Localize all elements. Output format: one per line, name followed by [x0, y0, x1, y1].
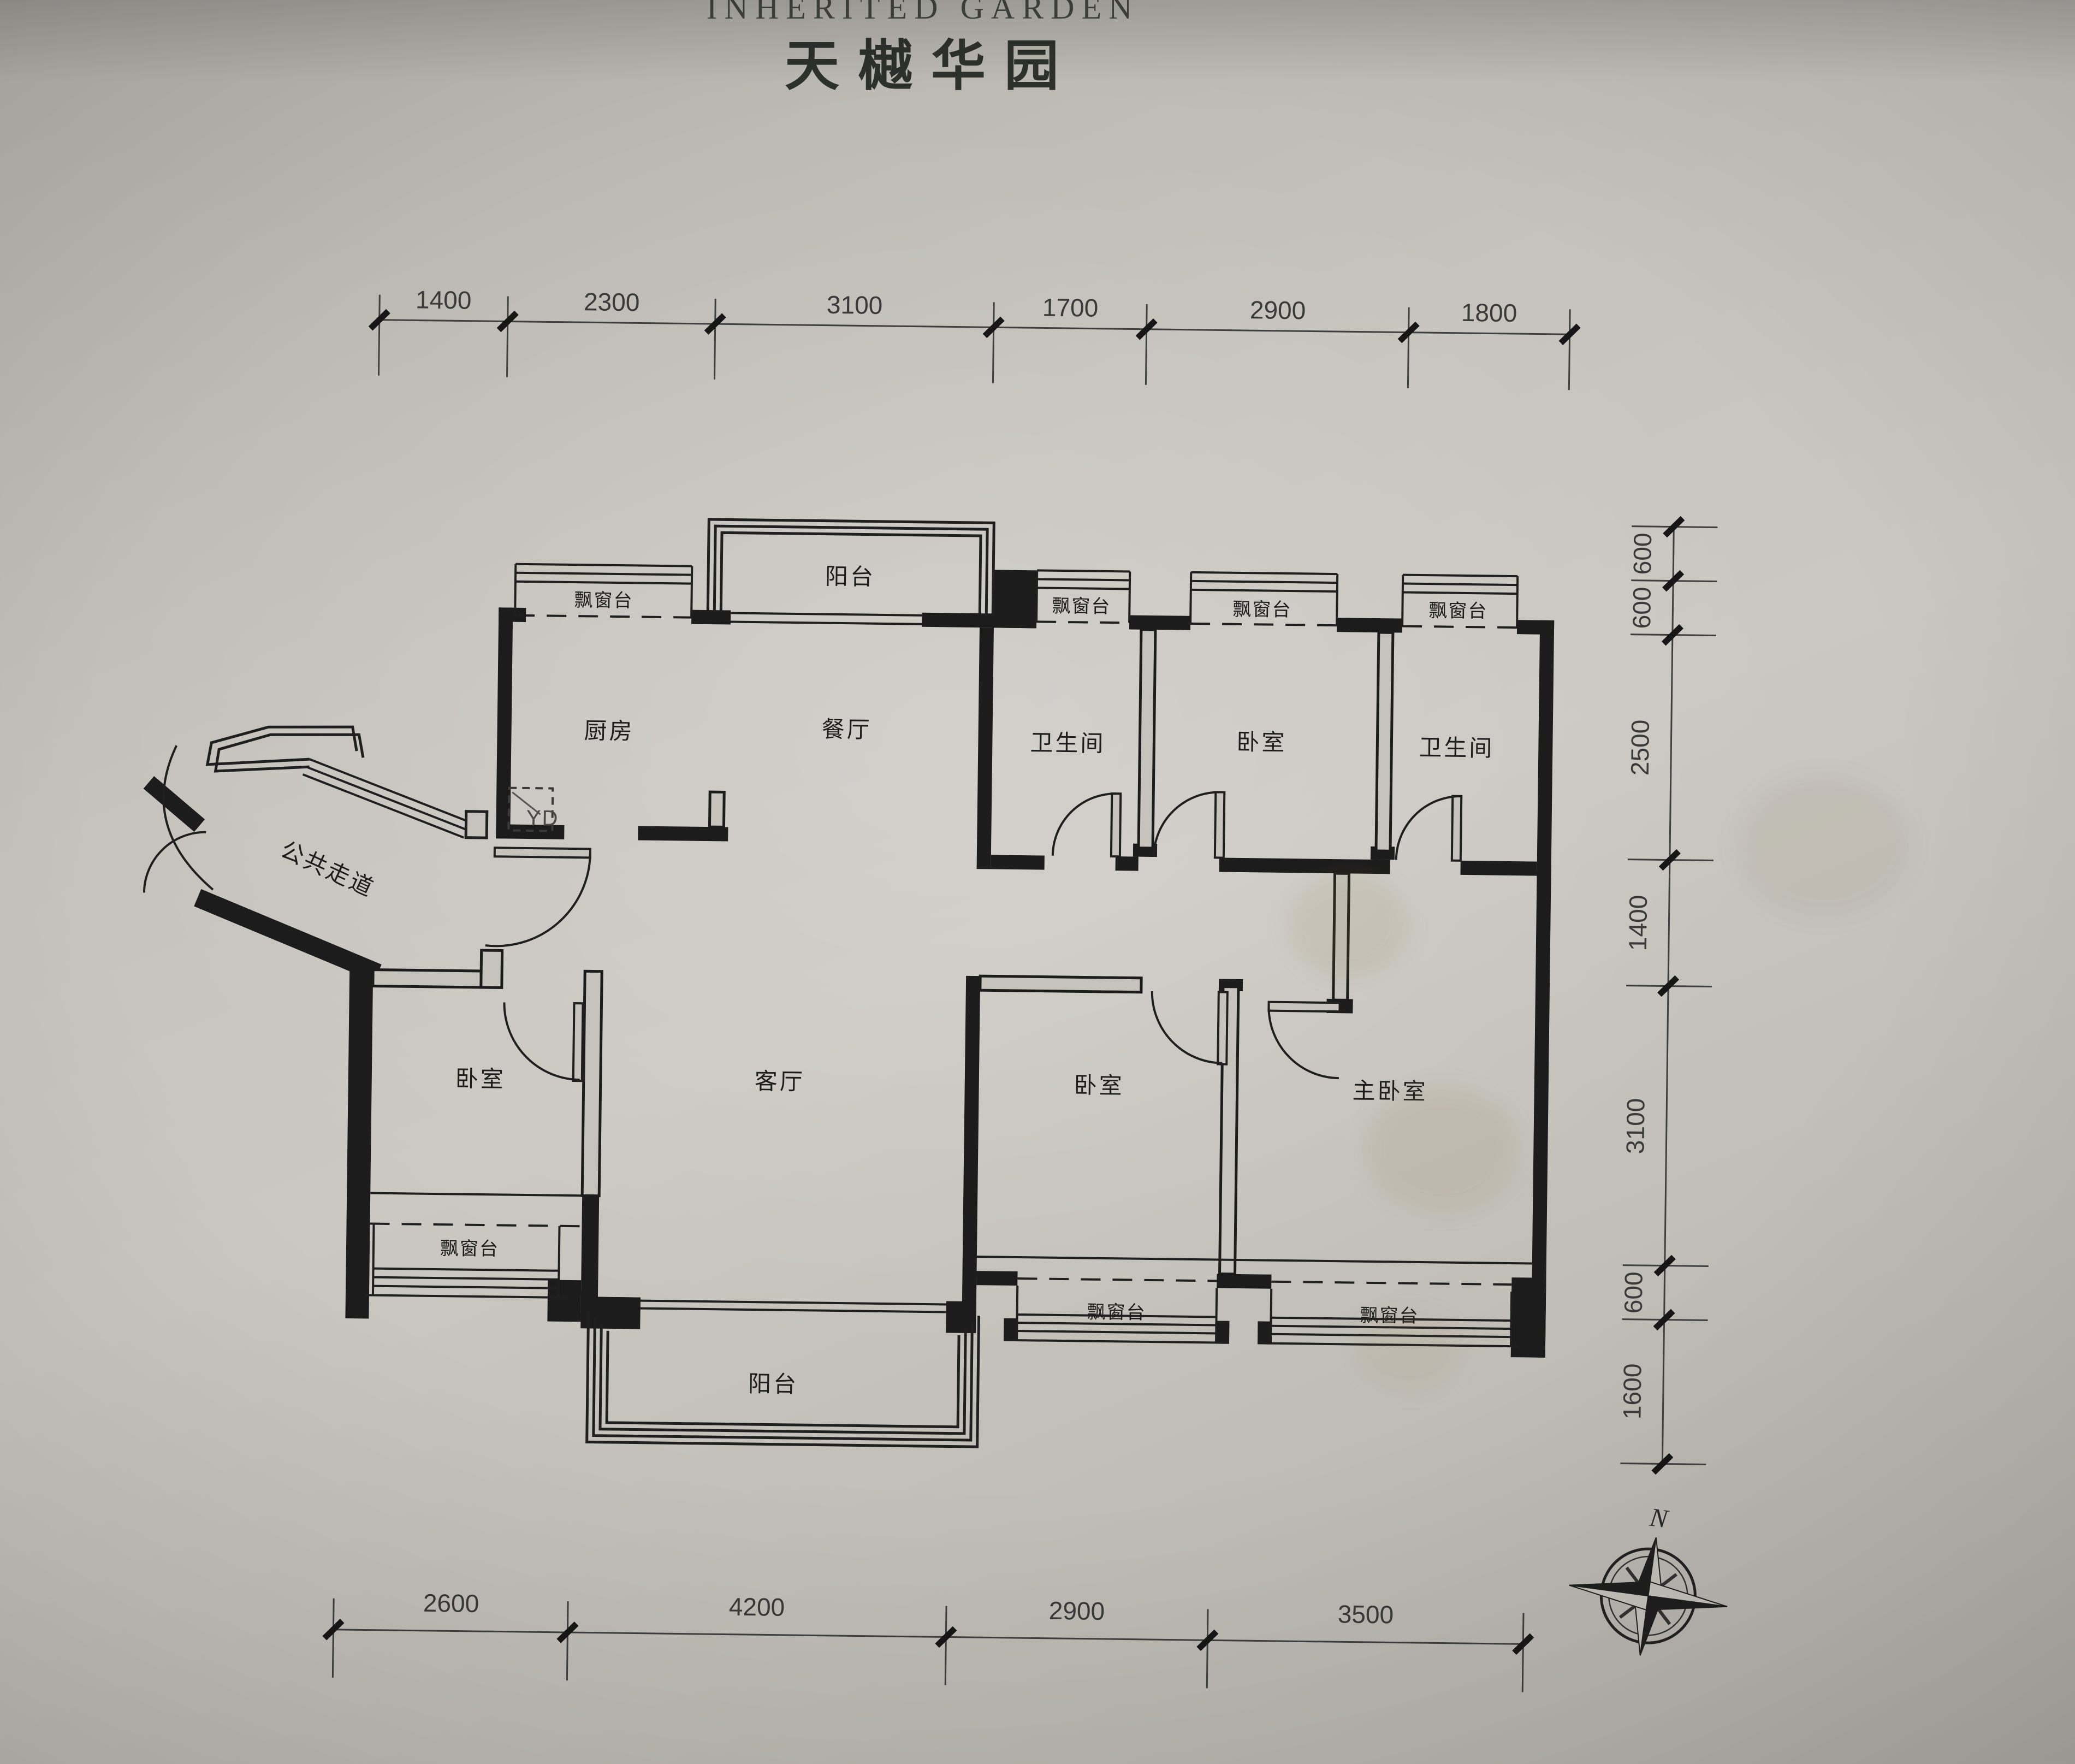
doors-layer [142, 745, 1462, 1091]
dim-bottom-2: 4200 [729, 1593, 785, 1621]
room-label-bath1: 卫生间 [1030, 730, 1106, 756]
room-label-kitchen: 厨房 [584, 718, 635, 744]
walls-layer [345, 562, 1555, 1358]
compass-north-label: N [1647, 1502, 1671, 1534]
dim-top-5: 2900 [1250, 295, 1306, 324]
dim-right-6: 600 [1619, 1271, 1648, 1313]
title-block: INHERITED GARDEN 天樾华园 [707, 0, 1140, 97]
bay-label-3: 飘窗台 [1232, 599, 1291, 620]
room-label-master: 主卧室 [1352, 1078, 1428, 1105]
dim-top-4: 1700 [1042, 293, 1099, 322]
bay-label-7: 飘窗台 [1360, 1305, 1419, 1327]
room-label-bedroom4: 卧室 [1074, 1072, 1124, 1098]
flue-label: YD [526, 806, 559, 831]
dim-top-6: 1800 [1461, 298, 1517, 327]
dim-top-1: 1400 [416, 285, 472, 314]
dim-top-2: 2300 [584, 287, 640, 316]
room-label-bedroom2: 卧室 [1236, 729, 1287, 755]
room-label-balcony-bottom: 阳台 [748, 1371, 799, 1397]
bay-label-4: 飘窗台 [1428, 600, 1487, 621]
dim-bottom-3: 2900 [1048, 1596, 1105, 1625]
room-label-bath2: 卫生间 [1419, 735, 1495, 761]
bay-label-6: 飘窗台 [1087, 1302, 1146, 1323]
dim-right-2: 600 [1627, 587, 1656, 629]
compass-rose: N [1561, 1493, 1740, 1666]
dimension-labels: 1400 2300 3100 1700 2900 1800 2600 4200 … [400, 285, 1660, 1632]
bay-label-1: 飘窗台 [574, 590, 633, 611]
project-title-chinese: 天樾华园 [785, 36, 1077, 97]
bay-label-5: 飘窗台 [440, 1238, 499, 1259]
dim-top-3: 3100 [827, 291, 883, 319]
room-label-public-corridor: 公共走道 [277, 837, 379, 902]
dimension-lines [333, 294, 1720, 1694]
dim-right-3: 2500 [1626, 719, 1655, 776]
project-title-english: INHERITED GARDEN [707, 0, 1140, 26]
room-label-balcony-top: 阳台 [825, 564, 876, 590]
dim-right-5: 3100 [1621, 1098, 1650, 1154]
dim-right-1: 600 [1628, 532, 1657, 575]
room-label-bedroom3: 卧室 [455, 1065, 506, 1092]
bay-label-2: 飘窗台 [1052, 596, 1111, 617]
partitions-layer [370, 620, 1393, 1276]
floorplan-photo: INHERITED GARDEN 天樾华园 [0, 0, 2075, 1764]
room-label-dining: 餐厅 [821, 717, 872, 743]
dim-bottom-4: 3500 [1337, 1600, 1394, 1629]
room-label-living: 客厅 [754, 1068, 805, 1094]
dim-right-7: 1600 [1617, 1363, 1646, 1419]
dim-right-4: 1400 [1623, 895, 1652, 951]
dim-bottom-1: 2600 [423, 1589, 479, 1618]
floorplan-drawing: INHERITED GARDEN 天樾华园 [0, 0, 2075, 1764]
